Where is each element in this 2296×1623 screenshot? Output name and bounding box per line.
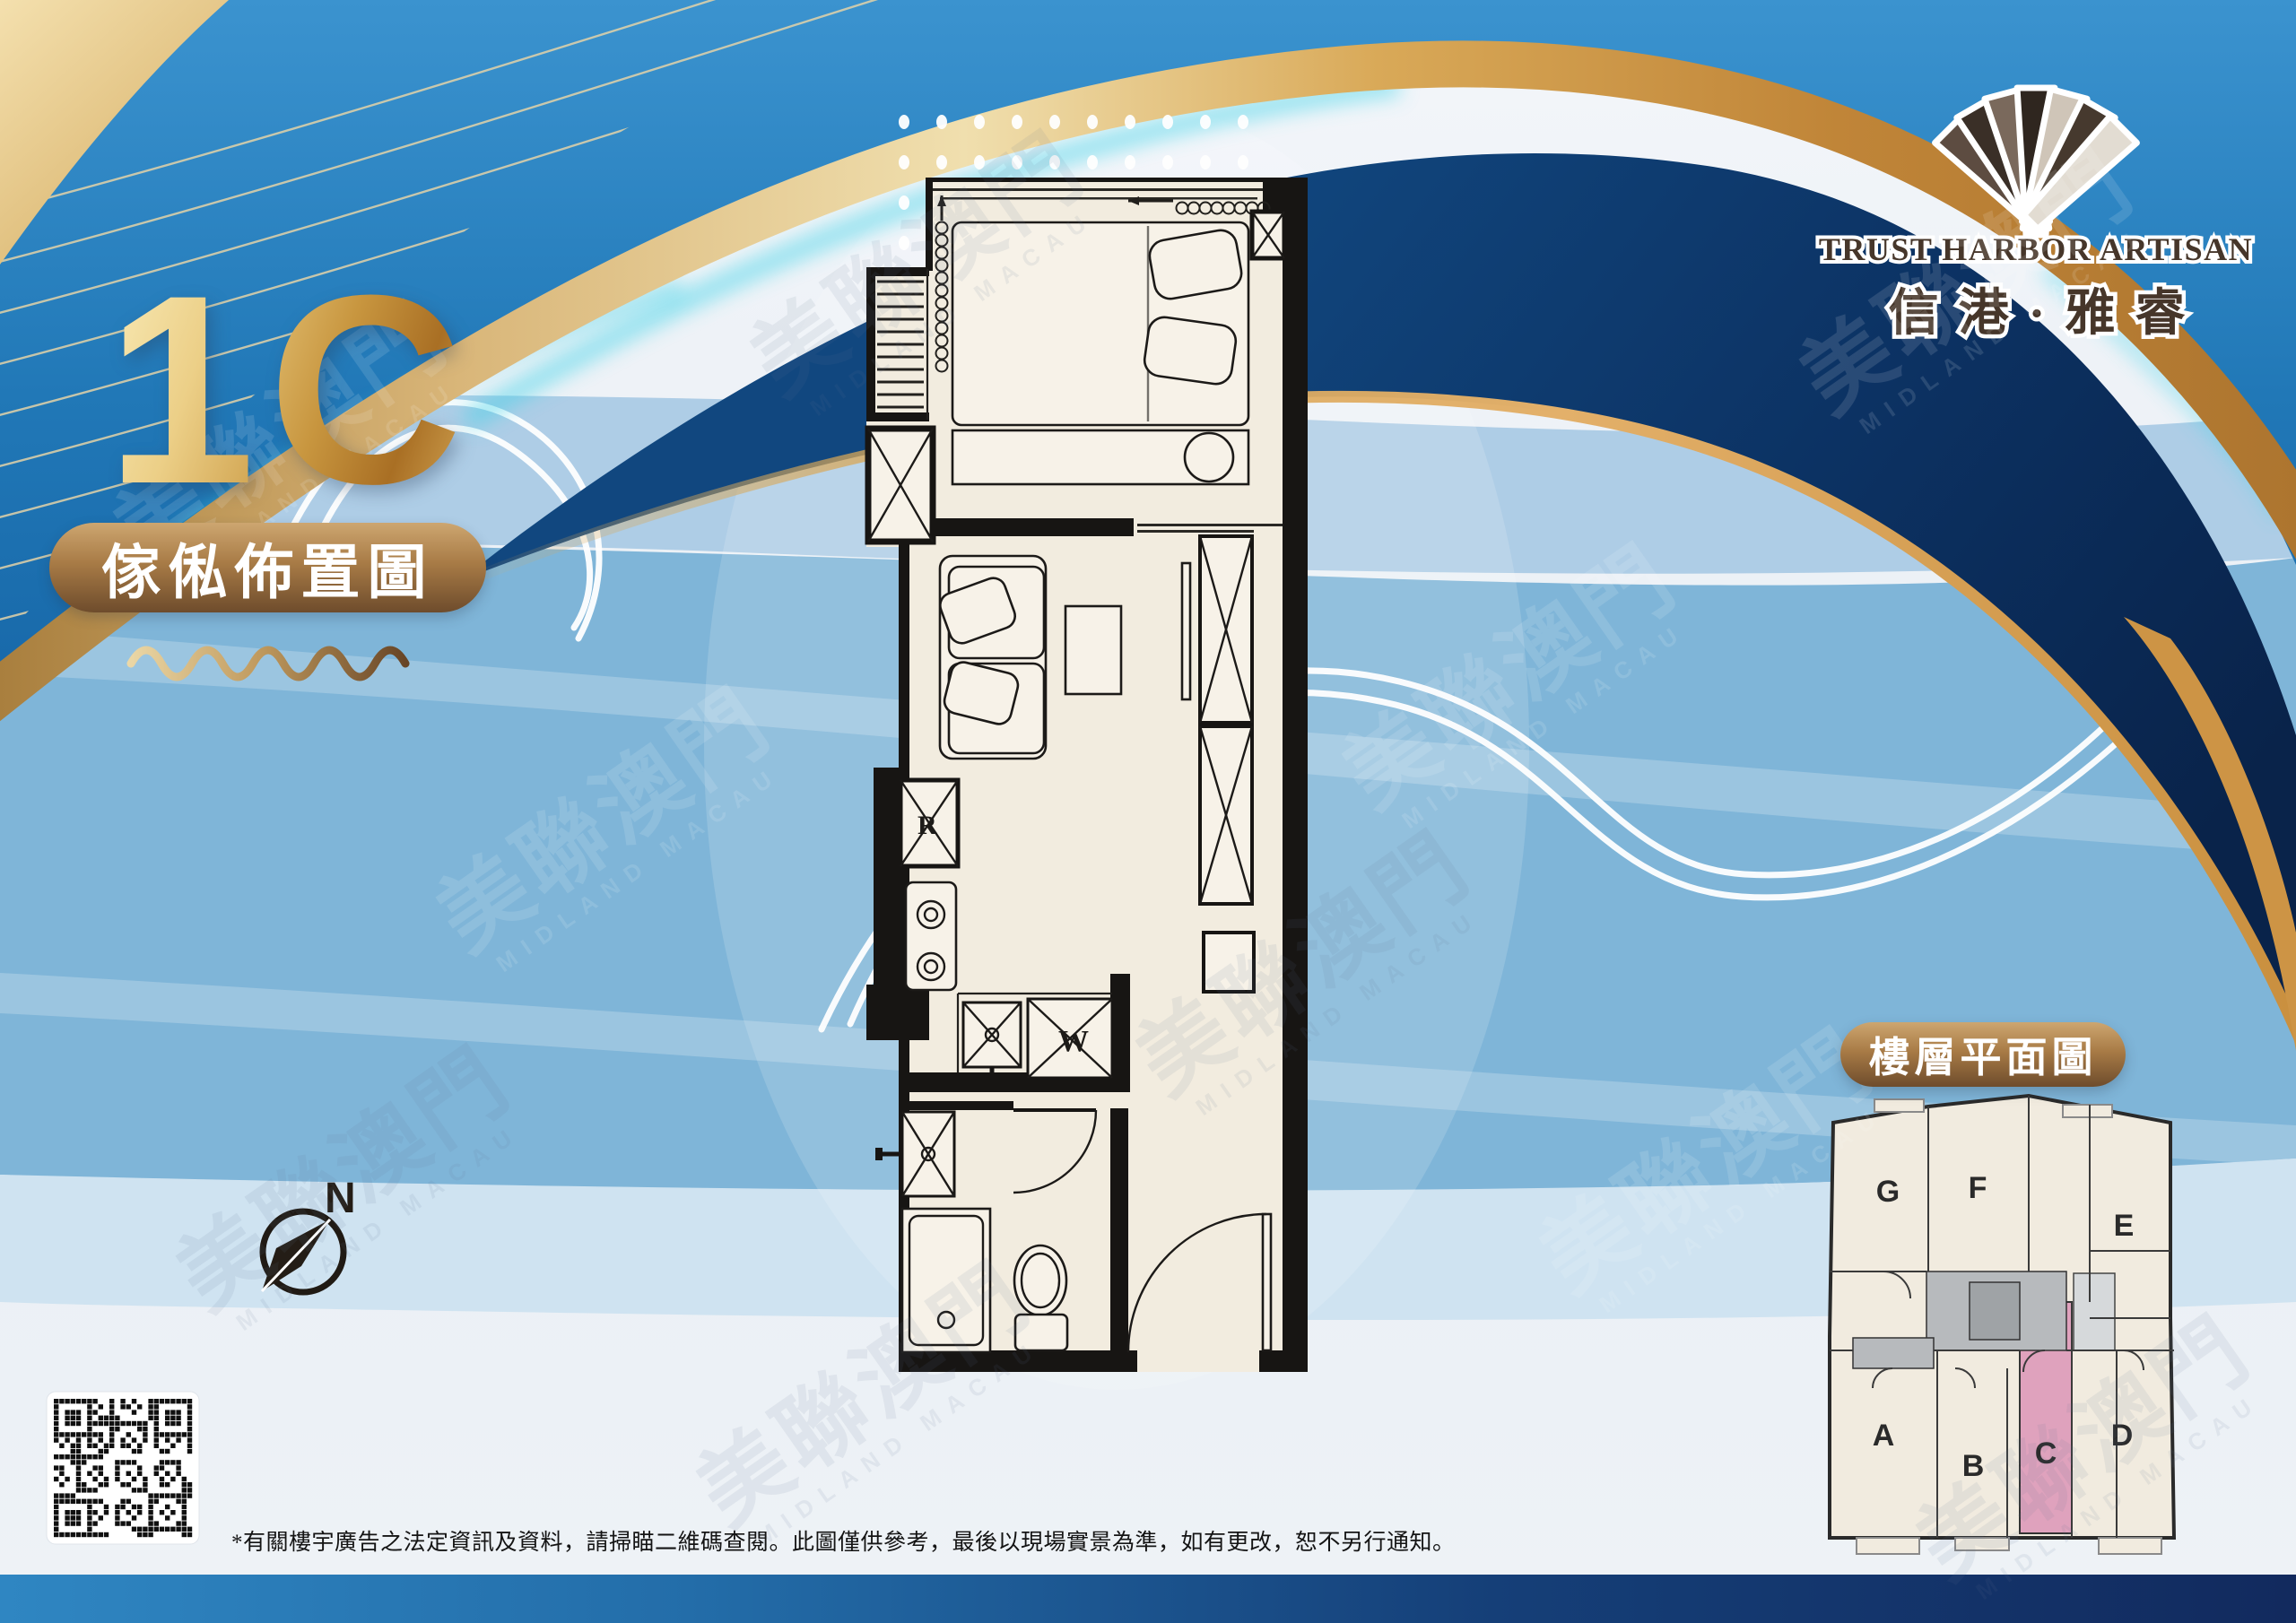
unit-title: 1C	[106, 255, 475, 524]
toilet-icon	[1014, 1245, 1067, 1350]
wall	[1283, 239, 1308, 1372]
qr-code	[47, 1392, 199, 1544]
plate-unit-label-f: F	[1969, 1171, 1987, 1205]
logo-name-en: TRUST HARBOR ARTISAN	[1819, 231, 2253, 267]
tv-icon	[1182, 563, 1190, 699]
floor-plate-plan: G F E A B C D	[1830, 1096, 2174, 1554]
floor-plate-badge-label: 樓層平面圖	[1869, 1025, 2098, 1084]
floor-plate-badge: 樓層平面圖	[1840, 1022, 2126, 1087]
coffee-table-icon	[1065, 606, 1121, 694]
plate-unit-label-d: D	[2111, 1419, 2134, 1453]
footer-band	[0, 1575, 2296, 1623]
floor-plan: R W	[866, 178, 1308, 1372]
plate-unit-label-a: A	[1873, 1419, 1895, 1453]
stove-icon	[906, 882, 956, 990]
washer-label: W	[1058, 1025, 1089, 1058]
plate-unit-label-e: E	[2114, 1209, 2135, 1243]
sofa-icon	[936, 556, 1046, 759]
fridge-icon: R	[900, 780, 958, 866]
plate-unit-label-c: C	[2035, 1436, 2057, 1471]
ac-box-icon	[868, 429, 933, 542]
poster: R W	[0, 0, 2296, 1623]
plate-unit-label-b: B	[1962, 1449, 1985, 1483]
furniture-plan-badge-label: 傢俬佈置圖	[102, 525, 434, 611]
ac-unit-icon	[1252, 212, 1284, 258]
plate-unit-label-g: G	[1876, 1175, 1900, 1209]
furniture-plan-badge: 傢俬佈置圖	[49, 523, 486, 612]
washing-machine-icon: W	[1028, 999, 1112, 1078]
squiggle-divider-icon	[126, 628, 422, 687]
bathtub-icon	[902, 1209, 990, 1352]
lift-core	[1970, 1282, 2020, 1340]
stool-icon	[1185, 433, 1233, 482]
bed-icon	[952, 222, 1248, 425]
compass-north-label: N	[325, 1175, 356, 1222]
desk-icon	[952, 430, 1248, 484]
fridge-label: R	[918, 811, 937, 840]
disclaimer-text: *有關樓宇廣告之法定資訊及資料，請掃瞄二維碼查閱。此圖僅供參考，最後以現場實景為…	[231, 1524, 1487, 1557]
logo-name-zh: 信港·雅睿	[1889, 286, 2205, 342]
